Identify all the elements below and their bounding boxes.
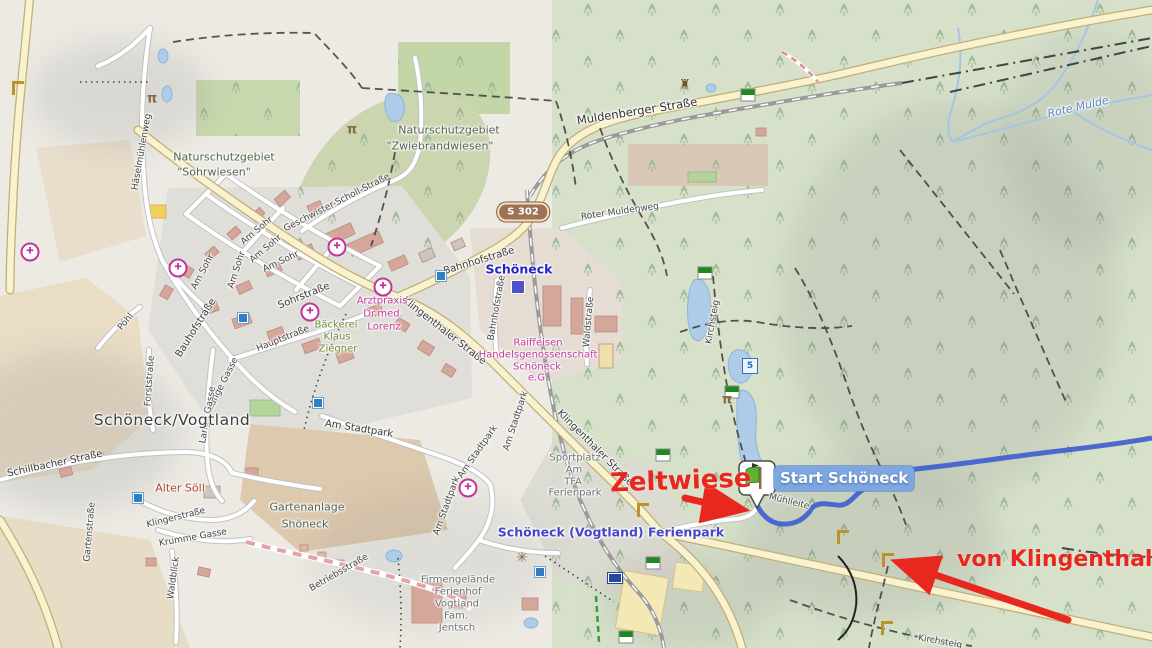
road-shield-s302: S 302: [497, 203, 549, 222]
start-marker-label[interactable]: Start Schöneck: [774, 466, 914, 491]
annotation-von-klingenthal: von Klingenthal: [957, 547, 1152, 572]
map-canvas[interactable]: HäselmühlenwegMuldenberger StraßeRoter M…: [0, 0, 1152, 648]
annotation-zeltwiese: Zeltwiese: [610, 464, 752, 499]
